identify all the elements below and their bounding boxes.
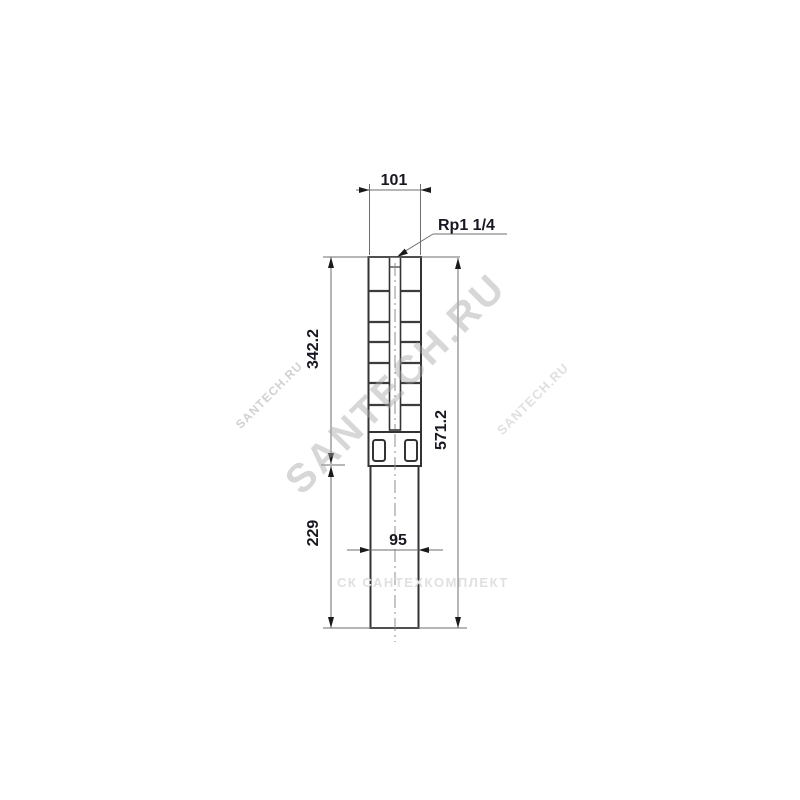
arrowhead [397,249,408,257]
dim-bottom-width: 95 [347,532,443,553]
dim-label-bottom-width: 95 [389,532,407,549]
watermark-horizontal: СК САНТЕХКОМПЛЕКТ [337,575,509,590]
arrowhead [359,187,370,193]
dim-label-top-width: 101 [381,172,408,189]
arrowhead [360,547,371,553]
dim-label-upper-height: 342.2 [305,329,322,369]
arrowhead [419,547,430,553]
dim-label-total-height: 571.2 [433,410,450,450]
dim-top-width: 101 [356,172,431,193]
inlet-slot-right [405,440,417,461]
arrowhead [455,617,461,628]
drawing-canvas: 101 Rp1 1/4 342.2 229 571.2 95 СК САНТЕХ… [0,0,800,800]
dim-label-thread: Rp1 1/4 [438,217,495,234]
watermark-small-right: SANTECH.RU [494,360,572,438]
dim-label-lower-height: 229 [305,520,322,547]
inlet-slot-left [373,440,385,461]
arrowhead [421,187,432,193]
arrowhead [328,257,334,268]
pump-dimension-drawing: 101 Rp1 1/4 342.2 229 571.2 95 СК САНТЕХ… [0,0,800,800]
arrowhead [328,617,334,628]
arrowhead [455,258,461,269]
watermark-small-left: SANTECH.RU [233,359,306,432]
thread-callout: Rp1 1/4 [397,217,507,257]
